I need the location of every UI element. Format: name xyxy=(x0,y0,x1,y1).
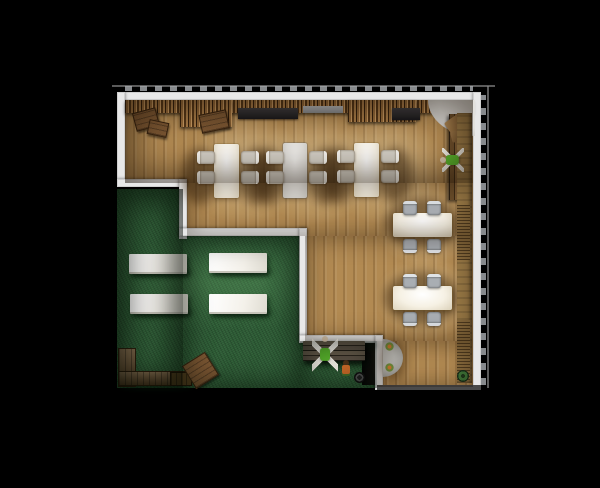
vignette-wood-right xyxy=(305,236,473,341)
floor-plan-render xyxy=(0,0,600,488)
dim-ticks-right xyxy=(481,95,486,385)
wall-left xyxy=(117,92,125,182)
dim-ticks-top xyxy=(125,86,473,91)
vignette-wood-bottom xyxy=(377,341,473,387)
wall-right xyxy=(473,92,481,390)
vignette-grass-bottom xyxy=(300,341,377,388)
vignette-wood-top xyxy=(125,100,473,183)
vignette-grass-main xyxy=(183,236,300,388)
wall-top xyxy=(117,92,481,100)
vignette-grass-left xyxy=(117,189,183,388)
vignette-wood-mid xyxy=(187,183,473,236)
dim-line-right xyxy=(487,86,489,388)
